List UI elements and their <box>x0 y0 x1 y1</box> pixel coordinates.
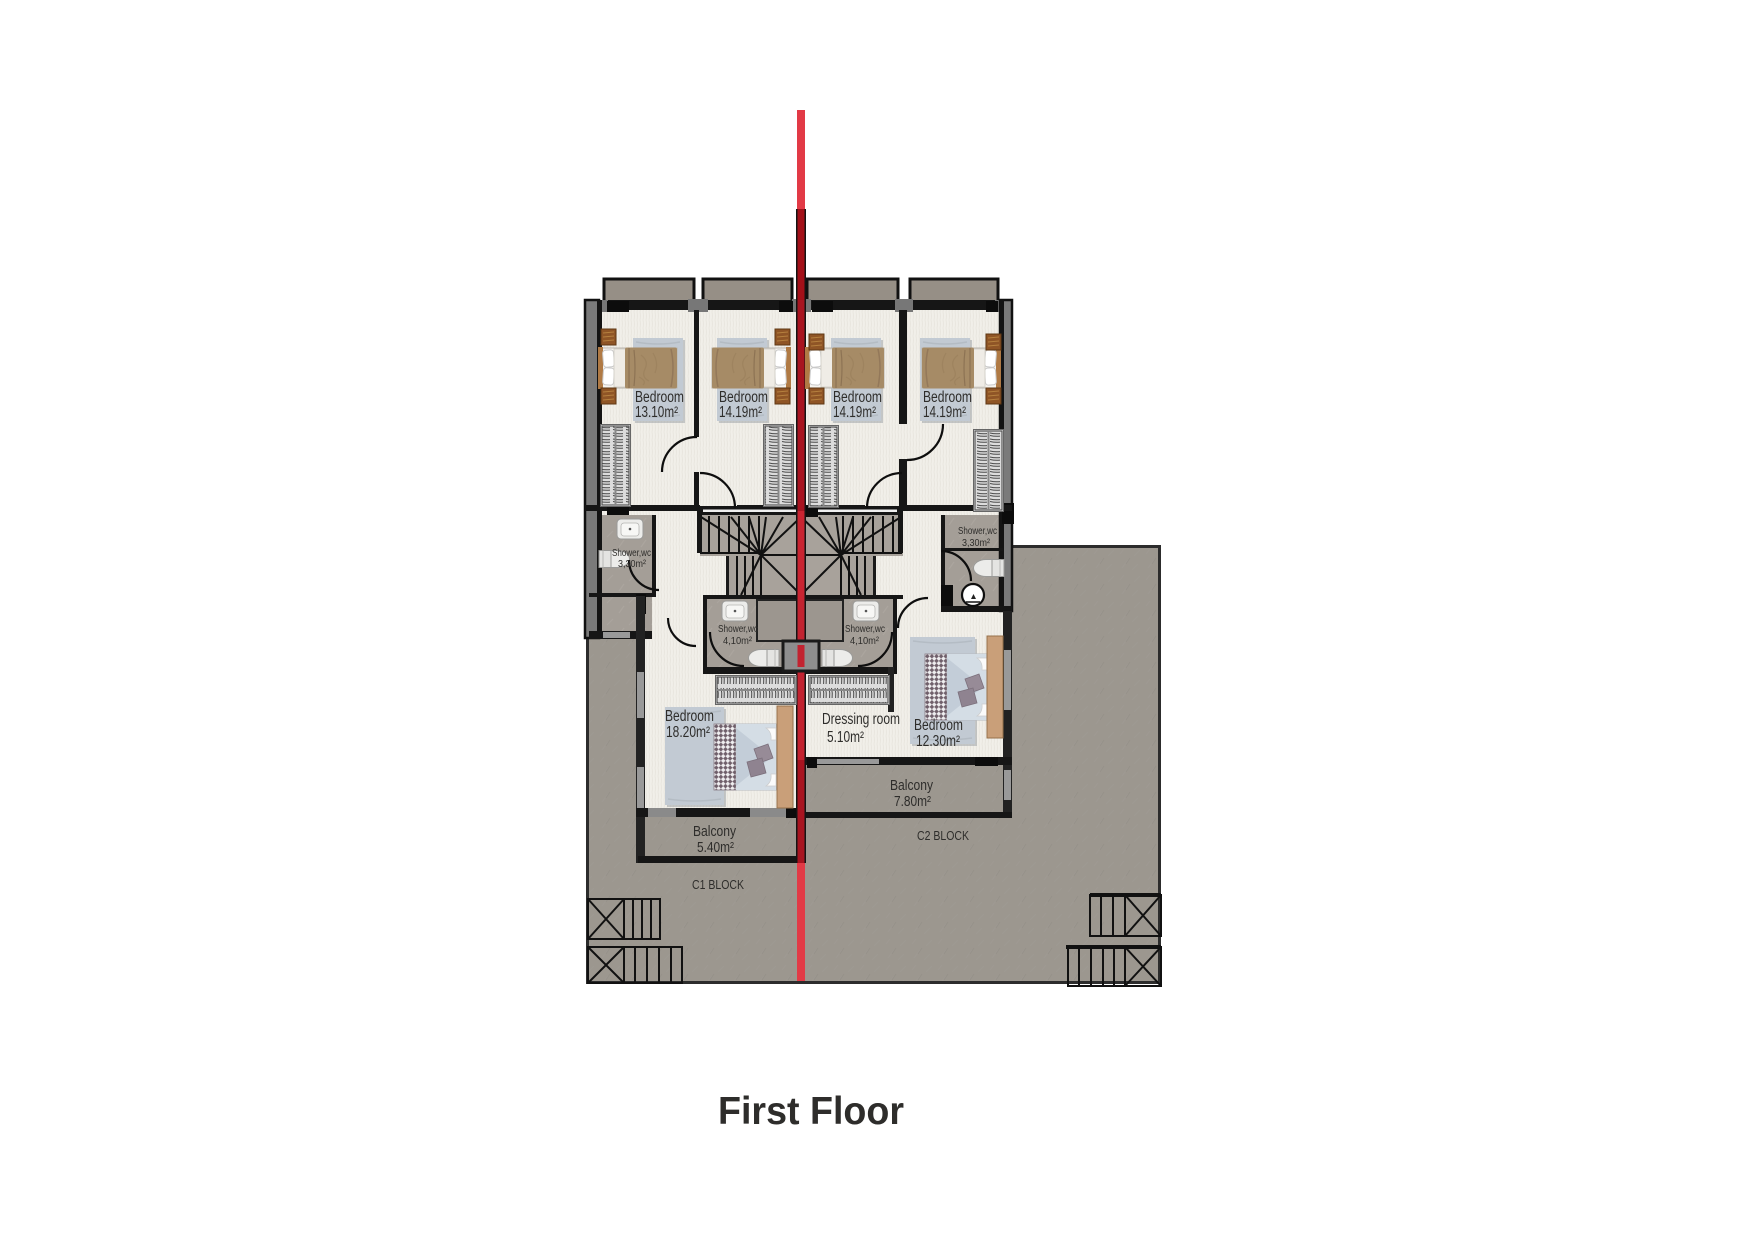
svg-text:14.19m²: 14.19m² <box>719 404 762 421</box>
svg-text:4,10m²: 4,10m² <box>723 635 752 647</box>
svg-text:12.30m²: 12.30m² <box>916 733 960 750</box>
svg-text:5.40m²: 5.40m² <box>697 840 734 856</box>
svg-text:C2 BLOCK: C2 BLOCK <box>917 829 970 843</box>
svg-text:18.20m²: 18.20m² <box>666 724 710 741</box>
svg-text:14.19m²: 14.19m² <box>923 404 966 421</box>
svg-text:13.10m²: 13.10m² <box>635 404 678 421</box>
svg-text:Shower,wc: Shower,wc <box>845 623 885 635</box>
svg-text:Dressing room: Dressing room <box>822 711 900 728</box>
svg-text:Balcony: Balcony <box>693 824 737 840</box>
svg-text:14.19m²: 14.19m² <box>833 404 876 421</box>
svg-text:Shower,wc: Shower,wc <box>612 548 651 559</box>
svg-text:Shower,wc: Shower,wc <box>958 526 997 537</box>
svg-text:Balcony: Balcony <box>890 778 934 794</box>
svg-text:3,30m²: 3,30m² <box>618 559 647 570</box>
svg-text:First Floor: First Floor <box>718 1090 904 1133</box>
svg-text:Shower,wc: Shower,wc <box>718 623 758 635</box>
svg-text:7.80m²: 7.80m² <box>894 794 931 810</box>
svg-text:5.10m²: 5.10m² <box>827 729 864 746</box>
svg-text:Bedroom: Bedroom <box>665 708 714 725</box>
svg-text:Bedroom: Bedroom <box>914 717 963 734</box>
svg-text:3,30m²: 3,30m² <box>962 538 991 549</box>
svg-text:4,10m²: 4,10m² <box>850 635 879 647</box>
svg-text:C1 BLOCK: C1 BLOCK <box>692 878 745 892</box>
